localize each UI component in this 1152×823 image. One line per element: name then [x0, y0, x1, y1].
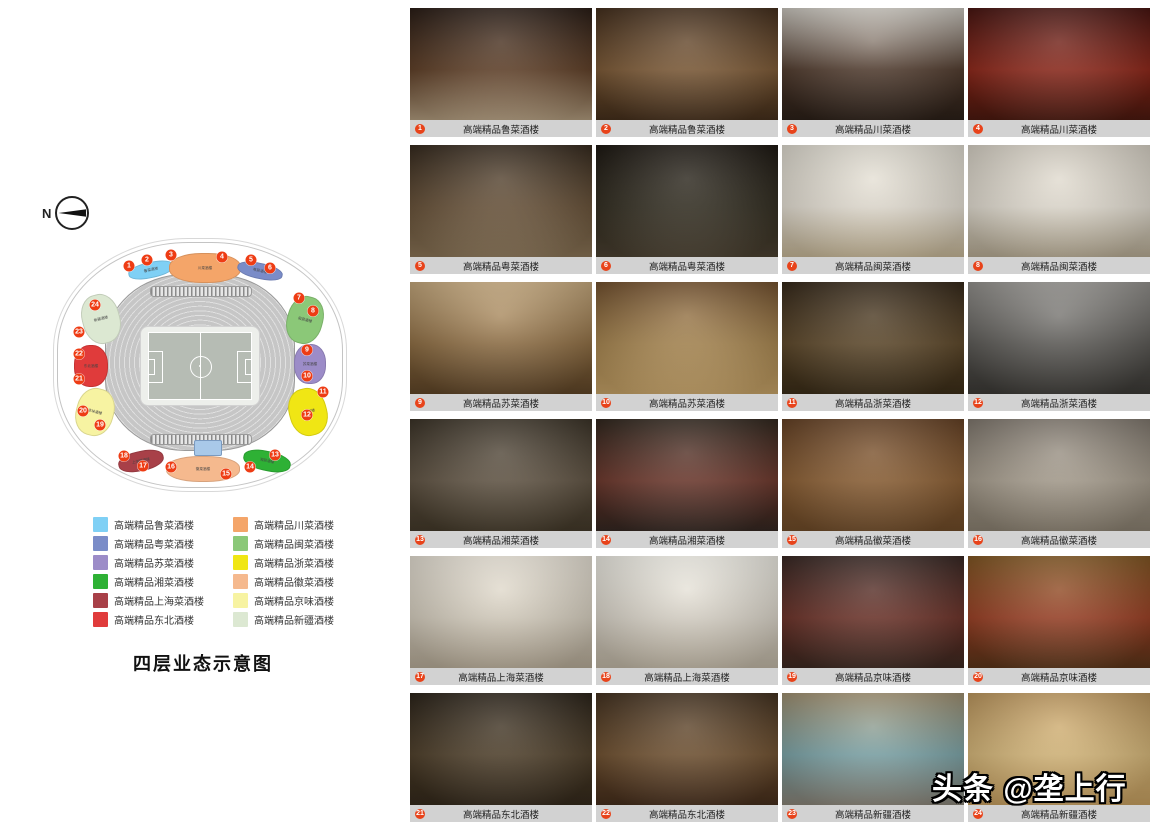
restaurant-photo [410, 419, 592, 531]
stadium-marker: 6 [265, 263, 276, 274]
stadium-marker: 3 [166, 250, 177, 261]
restaurant-photo [596, 419, 778, 531]
legend-label: 高端精品上海菜酒楼 [114, 593, 204, 608]
stadium-marker: 20 [78, 406, 89, 417]
stadium-zone-label: 闽菜酒楼 [297, 316, 312, 325]
photo-cell: 2高端精品鲁菜酒楼 [596, 8, 778, 137]
stadium-marker: 9 [302, 345, 313, 356]
stands-hatch-top [150, 286, 252, 297]
caption-text: 高端精品京味酒楼 [1021, 670, 1097, 684]
legend-item: 高端精品闽菜酒楼 [233, 536, 355, 551]
photo-light-overlay [968, 8, 1150, 120]
legend-swatch [93, 612, 108, 627]
caption-text: 高端精品浙菜酒楼 [1021, 396, 1097, 410]
caption-text: 高端精品浙菜酒楼 [835, 396, 911, 410]
legend-swatch [233, 593, 248, 608]
photo-cell: 9高端精品苏菜酒楼 [410, 282, 592, 411]
photo-caption: 12高端精品浙菜酒楼 [968, 394, 1150, 411]
photo-cell: 1高端精品鲁菜酒楼 [410, 8, 592, 137]
stadium-zone-label: 东北酒楼 [84, 363, 98, 368]
caption-number-badge: 2 [601, 124, 611, 134]
photo-light-overlay [596, 145, 778, 257]
stadium-zone-label: 鲁菜酒楼 [143, 266, 158, 274]
goal-box-left [148, 359, 155, 375]
caption-number-badge: 9 [415, 398, 425, 408]
legend-item: 高端精品粤菜酒楼 [93, 536, 233, 551]
stadium-marker: 2 [142, 255, 153, 266]
photo-caption: 4高端精品川菜酒楼 [968, 120, 1150, 137]
photo-light-overlay [782, 282, 964, 394]
stadium-zone-label: 京味酒楼 [87, 408, 102, 417]
caption-number-badge: 13 [415, 535, 425, 545]
photo-caption: 11高端精品浙菜酒楼 [782, 394, 964, 411]
photo-caption: 19高端精品京味酒楼 [782, 668, 964, 685]
stadium-marker: 16 [166, 462, 177, 473]
photo-light-overlay [968, 556, 1150, 668]
legend: 高端精品鲁菜酒楼高端精品粤菜酒楼高端精品苏菜酒楼高端精品湘菜酒楼高端精品上海菜酒… [93, 517, 355, 631]
restaurant-photo [968, 556, 1150, 668]
restaurant-photo [968, 419, 1150, 531]
caption-text: 高端精品上海菜酒楼 [458, 670, 544, 684]
photo-light-overlay [410, 693, 592, 805]
photo-caption: 7高端精品闽菜酒楼 [782, 257, 964, 274]
restaurant-photo [782, 282, 964, 394]
legend-item: 高端精品湘菜酒楼 [93, 574, 233, 589]
photo-cell: 8高端精品闽菜酒楼 [968, 145, 1150, 274]
legend-label: 高端精品苏菜酒楼 [114, 555, 194, 570]
stadium-zone-label: 新疆酒楼 [93, 315, 108, 324]
photo-light-overlay [782, 556, 964, 668]
caption-text: 高端精品苏菜酒楼 [649, 396, 725, 410]
legend-column: 高端精品川菜酒楼高端精品闽菜酒楼高端精品浙菜酒楼高端精品徽菜酒楼高端精品京味酒楼… [233, 517, 355, 631]
caption-number-badge: 8 [973, 261, 983, 271]
photo-cell: 21高端精品东北酒楼 [410, 693, 592, 822]
stadium-marker: 8 [308, 306, 319, 317]
photo-cell: 13高端精品湘菜酒楼 [410, 419, 592, 548]
caption-text: 高端精品徽菜酒楼 [835, 533, 911, 547]
photo-cell: 20高端精品京味酒楼 [968, 556, 1150, 685]
caption-text: 高端精品鲁菜酒楼 [463, 122, 539, 136]
stadium-zone-label: 徽菜酒楼 [196, 466, 210, 471]
photo-light-overlay [782, 419, 964, 531]
photo-grid: 1高端精品鲁菜酒楼2高端精品鲁菜酒楼3高端精品川菜酒楼4高端精品川菜酒楼5高端精… [410, 8, 1150, 822]
legend-label: 高端精品湘菜酒楼 [114, 574, 194, 589]
compass-circle [55, 196, 89, 230]
photo-light-overlay [410, 8, 592, 120]
photo-light-overlay [410, 145, 592, 257]
legend-item: 高端精品川菜酒楼 [233, 517, 355, 532]
caption-text: 高端精品东北酒楼 [649, 807, 725, 821]
caption-number-badge: 14 [601, 535, 611, 545]
photo-cell: 14高端精品湘菜酒楼 [596, 419, 778, 548]
floorplan-title: 四层业态示意图 [78, 650, 328, 676]
photo-caption: 10高端精品苏菜酒楼 [596, 394, 778, 411]
restaurant-photo [596, 282, 778, 394]
photo-caption: 1高端精品鲁菜酒楼 [410, 120, 592, 137]
restaurant-photo [782, 556, 964, 668]
legend-label: 高端精品新疆酒楼 [254, 612, 334, 627]
photo-cell: 18高端精品上海菜酒楼 [596, 556, 778, 685]
page: { "compass": {"label": "N"}, "floorplan"… [0, 0, 1152, 823]
restaurant-photo [410, 556, 592, 668]
caption-number-badge: 22 [601, 809, 611, 819]
photo-caption: 2高端精品鲁菜酒楼 [596, 120, 778, 137]
stadium-marker: 1 [124, 261, 135, 272]
photo-cell: 4高端精品川菜酒楼 [968, 8, 1150, 137]
photo-light-overlay [596, 282, 778, 394]
caption-text: 高端精品新疆酒楼 [835, 807, 911, 821]
legend-label: 高端精品京味酒楼 [254, 593, 334, 608]
caption-text: 高端精品徽菜酒楼 [1021, 533, 1097, 547]
photo-caption: 9高端精品苏菜酒楼 [410, 394, 592, 411]
photo-cell: 19高端精品京味酒楼 [782, 556, 964, 685]
legend-label: 高端精品东北酒楼 [114, 612, 194, 627]
restaurant-photo [596, 8, 778, 120]
stadium-marker: 15 [221, 469, 232, 480]
caption-text: 高端精品川菜酒楼 [835, 122, 911, 136]
stadium-zone: 川菜酒楼 [169, 253, 241, 283]
legend-column: 高端精品鲁菜酒楼高端精品粤菜酒楼高端精品苏菜酒楼高端精品湘菜酒楼高端精品上海菜酒… [93, 517, 233, 631]
photo-light-overlay [782, 8, 964, 120]
caption-number-badge: 7 [787, 261, 797, 271]
legend-swatch [93, 574, 108, 589]
caption-number-badge: 4 [973, 124, 983, 134]
pitch-center-dot [199, 365, 201, 367]
stadium-map: 鲁菜酒楼川菜酒楼粤菜酒楼闽菜酒楼苏菜酒楼浙菜酒楼湘菜酒楼徽菜酒楼上海菜酒楼京味酒… [55, 240, 345, 490]
stadium-marker: 7 [294, 293, 305, 304]
stadium-marker: 24 [90, 300, 101, 311]
caption-number-badge: 16 [973, 535, 983, 545]
photo-cell: 17高端精品上海菜酒楼 [410, 556, 592, 685]
photo-caption: 15高端精品徽菜酒楼 [782, 531, 964, 548]
stadium-marker: 18 [119, 451, 130, 462]
legend-label: 高端精品鲁菜酒楼 [114, 517, 194, 532]
compass: N [42, 196, 89, 230]
photo-light-overlay [782, 145, 964, 257]
legend-swatch [233, 555, 248, 570]
caption-text: 高端精品湘菜酒楼 [463, 533, 539, 547]
caption-text: 高端精品湘菜酒楼 [649, 533, 725, 547]
caption-number-badge: 12 [973, 398, 983, 408]
photo-cell: 5高端精品粤菜酒楼 [410, 145, 592, 274]
photo-caption: 6高端精品粤菜酒楼 [596, 257, 778, 274]
caption-number-badge: 3 [787, 124, 797, 134]
caption-number-badge: 5 [415, 261, 425, 271]
photo-caption: 17高端精品上海菜酒楼 [410, 668, 592, 685]
caption-text: 高端精品上海菜酒楼 [644, 670, 730, 684]
caption-number-badge: 10 [601, 398, 611, 408]
caption-text: 高端精品闽菜酒楼 [835, 259, 911, 273]
caption-number-badge: 6 [601, 261, 611, 271]
photo-light-overlay [968, 145, 1150, 257]
vip-area-box [194, 440, 222, 456]
caption-text: 高端精品川菜酒楼 [1021, 122, 1097, 136]
caption-number-badge: 24 [973, 809, 983, 819]
legend-item: 高端精品鲁菜酒楼 [93, 517, 233, 532]
legend-swatch [233, 574, 248, 589]
stadium-marker: 14 [245, 462, 256, 473]
legend-item: 高端精品徽菜酒楼 [233, 574, 355, 589]
legend-label: 高端精品粤菜酒楼 [114, 536, 194, 551]
legend-swatch [93, 517, 108, 532]
photo-caption: 14高端精品湘菜酒楼 [596, 531, 778, 548]
photo-cell: 15高端精品徽菜酒楼 [782, 419, 964, 548]
compass-needle-icon [58, 209, 86, 218]
photo-cell: 6高端精品粤菜酒楼 [596, 145, 778, 274]
restaurant-photo [782, 419, 964, 531]
restaurant-photo [596, 693, 778, 805]
legend-label: 高端精品徽菜酒楼 [254, 574, 334, 589]
caption-text: 高端精品闽菜酒楼 [1021, 259, 1097, 273]
caption-number-badge: 1 [415, 124, 425, 134]
photo-light-overlay [596, 8, 778, 120]
pitch-center-circle [190, 356, 212, 378]
restaurant-photo [410, 145, 592, 257]
legend-swatch [233, 612, 248, 627]
caption-text: 高端精品鲁菜酒楼 [649, 122, 725, 136]
restaurant-photo [968, 282, 1150, 394]
stadium-marker: 13 [270, 450, 281, 461]
photo-caption: 22高端精品东北酒楼 [596, 805, 778, 822]
photo-caption: 21高端精品东北酒楼 [410, 805, 592, 822]
legend-item: 高端精品东北酒楼 [93, 612, 233, 627]
restaurant-photo [410, 282, 592, 394]
caption-number-badge: 23 [787, 809, 797, 819]
restaurant-photo [410, 693, 592, 805]
photo-light-overlay [410, 282, 592, 394]
restaurant-photo [782, 8, 964, 120]
goal-box-right [245, 359, 252, 375]
stadium-marker: 17 [138, 461, 149, 472]
stadium-zone-label: 川菜酒楼 [198, 265, 212, 270]
restaurant-photo [596, 556, 778, 668]
photo-light-overlay [596, 556, 778, 668]
legend-swatch [233, 517, 248, 532]
photo-light-overlay [596, 419, 778, 531]
stadium-marker: 23 [74, 327, 85, 338]
restaurant-photo [596, 145, 778, 257]
photo-cell: 3高端精品川菜酒楼 [782, 8, 964, 137]
photo-caption: 5高端精品粤菜酒楼 [410, 257, 592, 274]
photo-light-overlay [410, 419, 592, 531]
restaurant-photo [782, 145, 964, 257]
caption-text: 高端精品东北酒楼 [463, 807, 539, 821]
photo-caption: 8高端精品闽菜酒楼 [968, 257, 1150, 274]
legend-swatch [93, 536, 108, 551]
restaurant-photo [410, 8, 592, 120]
stadium-marker: 21 [74, 374, 85, 385]
legend-swatch [93, 555, 108, 570]
legend-item: 高端精品新疆酒楼 [233, 612, 355, 627]
restaurant-photo [968, 8, 1150, 120]
photo-caption: 3高端精品川菜酒楼 [782, 120, 964, 137]
photo-caption: 16高端精品徽菜酒楼 [968, 531, 1150, 548]
caption-text: 高端精品粤菜酒楼 [463, 259, 539, 273]
legend-swatch [93, 593, 108, 608]
caption-text: 高端精品京味酒楼 [835, 670, 911, 684]
caption-number-badge: 17 [415, 672, 425, 682]
watermark: 头条 @垄上行 [932, 764, 1127, 808]
photo-cell: 12高端精品浙菜酒楼 [968, 282, 1150, 411]
legend-item: 高端精品苏菜酒楼 [93, 555, 233, 570]
legend-label: 高端精品川菜酒楼 [254, 517, 334, 532]
restaurant-photo [968, 145, 1150, 257]
photo-caption: 20高端精品京味酒楼 [968, 668, 1150, 685]
caption-number-badge: 20 [973, 672, 983, 682]
floorplan-panel: N 鲁菜酒楼川菜酒楼粤菜酒楼闽菜酒楼苏菜酒楼浙菜酒楼湘菜酒楼徽菜酒楼上海菜酒楼京… [0, 0, 405, 823]
stadium-marker: 22 [74, 349, 85, 360]
photo-cell: 22高端精品东北酒楼 [596, 693, 778, 822]
stadium-zone-label: 苏菜酒楼 [303, 361, 317, 366]
caption-number-badge: 18 [601, 672, 611, 682]
legend-item: 高端精品浙菜酒楼 [233, 555, 355, 570]
stadium-marker: 12 [302, 410, 313, 421]
caption-number-badge: 21 [415, 809, 425, 819]
photo-cell: 11高端精品浙菜酒楼 [782, 282, 964, 411]
stadium-marker: 19 [95, 420, 106, 431]
photo-cell: 7高端精品闽菜酒楼 [782, 145, 964, 274]
compass-n-label: N [42, 206, 51, 221]
photo-caption: 18高端精品上海菜酒楼 [596, 668, 778, 685]
caption-number-badge: 15 [787, 535, 797, 545]
photo-caption: 13高端精品湘菜酒楼 [410, 531, 592, 548]
football-pitch [148, 332, 252, 400]
stadium-marker: 4 [217, 252, 228, 263]
caption-text: 高端精品粤菜酒楼 [649, 259, 725, 273]
photo-light-overlay [968, 282, 1150, 394]
stadium-marker: 10 [302, 371, 313, 382]
legend-label: 高端精品浙菜酒楼 [254, 555, 334, 570]
photo-light-overlay [596, 693, 778, 805]
photo-light-overlay [410, 556, 592, 668]
legend-item: 高端精品上海菜酒楼 [93, 593, 233, 608]
caption-number-badge: 19 [787, 672, 797, 682]
caption-number-badge: 11 [787, 398, 797, 408]
photo-cell: 10高端精品苏菜酒楼 [596, 282, 778, 411]
legend-item: 高端精品京味酒楼 [233, 593, 355, 608]
legend-swatch [233, 536, 248, 551]
caption-text: 高端精品新疆酒楼 [1021, 807, 1097, 821]
photo-cell: 16高端精品徽菜酒楼 [968, 419, 1150, 548]
legend-label: 高端精品闽菜酒楼 [254, 536, 334, 551]
photo-light-overlay [968, 419, 1150, 531]
stadium-marker: 11 [318, 387, 329, 398]
caption-text: 高端精品苏菜酒楼 [463, 396, 539, 410]
stadium-marker: 5 [246, 255, 257, 266]
